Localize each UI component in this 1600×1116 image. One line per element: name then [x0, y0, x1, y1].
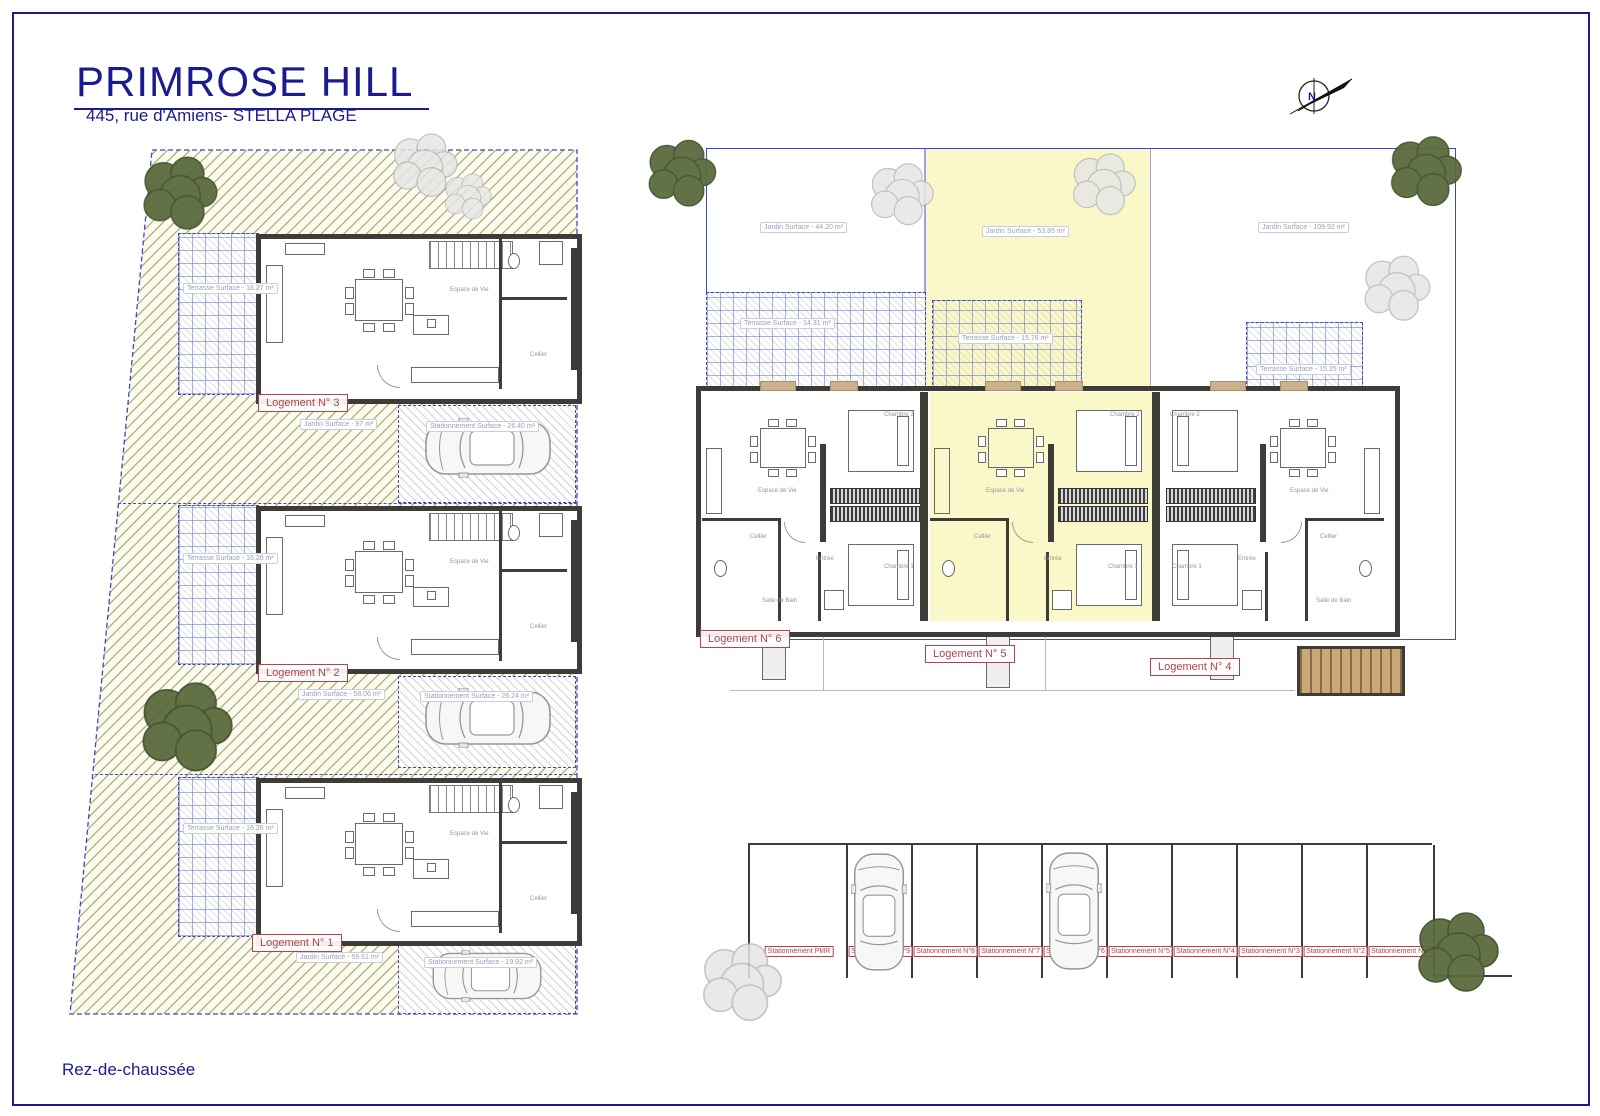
chair-icon	[383, 323, 395, 332]
furniture-unit-2	[261, 511, 567, 661]
pillow-icon	[1125, 416, 1137, 466]
terrace-unit-5	[932, 300, 1082, 390]
terrace-unit-2	[178, 505, 259, 665]
wardrobe-icon	[830, 506, 920, 522]
room-label-chambre1: Chambre 1	[1172, 564, 1202, 570]
chair-icon	[768, 419, 779, 427]
sink-icon	[427, 319, 436, 328]
door-sill	[830, 381, 858, 391]
interior-wall	[930, 518, 1008, 521]
parking-lot: Stationnement PMR Stationnement N°9 Stat…	[748, 843, 1432, 980]
terrace-surface-label: Terrasse Surface - 16.26 m²	[183, 553, 278, 564]
garden-surface-label: Jardin Surface - 44.20 m²	[760, 222, 847, 233]
chair-icon	[996, 469, 1007, 477]
terrace-surface-label: Terrasse Surface - 15.76 m²	[958, 333, 1053, 344]
building-annex	[571, 520, 579, 642]
pillow-icon	[1177, 550, 1189, 600]
console-icon	[285, 515, 325, 527]
path-line	[1045, 628, 1046, 690]
sofa-icon	[266, 809, 283, 887]
chair-icon	[405, 559, 414, 571]
shower-icon	[539, 513, 563, 537]
party-wall	[920, 392, 928, 621]
wardrobe-icon	[1058, 506, 1148, 522]
interior-wall	[1006, 518, 1009, 621]
building-annex	[571, 792, 579, 914]
chair-icon	[1014, 419, 1025, 427]
chair-icon	[1289, 469, 1300, 477]
room-label-cellier: Cellier	[1320, 534, 1337, 540]
stall-label: Stationnement N°6	[1043, 946, 1108, 957]
shower-icon	[539, 241, 563, 265]
interior-wall	[499, 569, 567, 572]
dining-table-icon	[355, 279, 403, 321]
wc-icon	[1359, 560, 1372, 577]
parking-stall-6: Stationnement N°6	[1041, 845, 1108, 978]
chair-icon	[405, 303, 414, 315]
dining-table-icon	[355, 823, 403, 865]
room-label-cellier: Cellier	[974, 534, 991, 540]
bed-icon	[848, 410, 914, 472]
parking-stall-3: Stationnement N°3	[1236, 845, 1303, 978]
bed-icon	[1076, 544, 1142, 606]
garden-surface-label: Jardin Surface - 53.85 m²	[982, 226, 1069, 237]
chair-icon	[405, 575, 414, 587]
parking-area-unit-3	[398, 405, 576, 503]
chair-icon	[750, 452, 758, 463]
path-line	[730, 690, 1295, 691]
chair-icon	[363, 323, 375, 332]
door-arc-icon	[1012, 522, 1033, 543]
terrace-surface-label: Terrasse Surface - 14.31 m²	[740, 318, 835, 329]
room-label-chambre2: Chambre 2	[1110, 412, 1140, 418]
garden-surface-label: Jardin Surface - 97 m²	[300, 419, 377, 430]
stall-label: Stationnement N°5	[1108, 946, 1173, 957]
dining-table-icon	[1280, 428, 1326, 468]
chair-icon	[405, 287, 414, 299]
furniture-unit-1	[261, 783, 567, 933]
bed-icon	[1076, 410, 1142, 472]
room-label-living: Espace de Vie	[450, 559, 489, 565]
garden-surface-label: Jardin Surface - 109.92 m²	[1258, 222, 1349, 233]
parking-surface-label: Stationnement Surface - 26.24 m²	[420, 691, 533, 702]
interior-wall	[1046, 552, 1049, 621]
terrace-unit-1	[178, 777, 259, 937]
path-line	[823, 628, 824, 690]
plan-sheet: PRIMROSE HILL 445, rue d'Amiens- STELLA …	[0, 0, 1600, 1116]
chair-icon	[345, 847, 354, 859]
sofa-icon	[266, 537, 283, 615]
parking-stall-4: Stationnement N°4	[1171, 845, 1238, 978]
pillow-icon	[897, 550, 909, 600]
chair-icon	[808, 452, 816, 463]
stall-label: Stationnement N°2	[1303, 946, 1368, 957]
furniture-unit-5	[930, 392, 1148, 621]
lot-division-line	[95, 774, 577, 775]
chair-icon	[383, 813, 395, 822]
room-label-entree: Entrée	[1238, 556, 1256, 562]
room-label-living: Espace de Vie	[450, 287, 489, 293]
chair-icon	[345, 575, 354, 587]
chair-icon	[1328, 436, 1336, 447]
door-arc-icon	[377, 909, 400, 932]
terrace-unit-3	[178, 233, 259, 395]
room-label-living: Espace de Vie	[758, 488, 797, 494]
chair-icon	[1307, 469, 1318, 477]
interior-wall	[499, 511, 502, 661]
door-sill	[985, 381, 1021, 391]
wc-icon	[508, 797, 520, 813]
interior-wall	[499, 783, 502, 933]
chair-icon	[1036, 452, 1044, 463]
chair-icon	[996, 419, 1007, 427]
shower-icon	[539, 785, 563, 809]
pillow-icon	[1125, 550, 1137, 600]
interior-wall	[1305, 518, 1308, 621]
interior-wall	[778, 518, 781, 621]
chair-icon	[786, 419, 797, 427]
room-label-sdb: Salle de Bain	[762, 598, 797, 604]
chair-icon	[345, 559, 354, 571]
sofa-icon	[1364, 448, 1380, 514]
parking-stall-8: Stationnement N°8	[911, 845, 978, 978]
door-sill	[1055, 381, 1083, 391]
project-title: PRIMROSE HILL	[74, 58, 429, 110]
parking-stall-pmr: Stationnement PMR	[748, 845, 848, 978]
room-label-chambre1: Chambre 1	[884, 564, 914, 570]
room-label-living: Espace de Vie	[1290, 488, 1329, 494]
sink-icon	[427, 591, 436, 600]
chair-icon	[1036, 436, 1044, 447]
media-wall	[1048, 444, 1054, 542]
stall-label: Stationnement N°7	[978, 946, 1043, 957]
chair-icon	[1270, 452, 1278, 463]
parking-stall-1: Stationnement N°1	[1366, 845, 1435, 978]
door-sill	[760, 381, 796, 391]
door-arc-icon	[1281, 522, 1302, 543]
bed-icon	[1172, 410, 1238, 472]
stall-label: Stationnement PMR	[765, 946, 834, 957]
sofa-icon	[934, 448, 950, 514]
media-wall	[820, 444, 826, 542]
kitchen-counter-icon	[411, 911, 499, 927]
stall-label: Stationnement N°9	[848, 946, 913, 957]
chair-icon	[978, 452, 986, 463]
wc-icon	[942, 560, 955, 577]
room-label-living: Espace de Vie	[450, 831, 489, 837]
chair-icon	[978, 436, 986, 447]
wardrobe-icon	[830, 488, 920, 504]
project-address: 445, rue d'Amiens- STELLA PLAGE	[86, 106, 357, 126]
parking-stall-5: Stationnement N°5	[1106, 845, 1173, 978]
unit-label: Logement N° 3	[258, 394, 348, 412]
unit-label: Logement N° 1	[252, 934, 342, 952]
unit-label: Logement N° 6	[700, 630, 790, 648]
furniture-unit-4	[1162, 392, 1384, 621]
pillow-icon	[897, 416, 909, 466]
door-sill	[1280, 381, 1308, 391]
wardrobe-icon	[1166, 488, 1256, 504]
console-icon	[285, 787, 325, 799]
terrace-surface-label: Terrasse Surface - 15.25 m²	[1256, 364, 1351, 375]
chair-icon	[808, 436, 816, 447]
room-label-cellier: Cellier	[530, 896, 547, 902]
wardrobe-icon	[1166, 506, 1256, 522]
room-label-chambre2: Chambre 2	[1170, 412, 1200, 418]
door-sill	[1210, 381, 1246, 391]
chair-icon	[1328, 452, 1336, 463]
chair-icon	[1307, 419, 1318, 427]
chair-icon	[363, 867, 375, 876]
chair-icon	[345, 303, 354, 315]
interior-wall	[499, 297, 567, 300]
parking-stall-9: Stationnement N°9	[846, 845, 913, 978]
wardrobe-icon	[1058, 488, 1148, 504]
furniture-unit-6	[702, 392, 920, 621]
kitchen-counter-icon	[411, 367, 499, 383]
door-arc-icon	[377, 637, 400, 660]
parking-area-unit-1	[398, 940, 576, 1014]
floor-label: Rez-de-chaussée	[62, 1060, 195, 1080]
interior-wall	[818, 552, 821, 621]
parking-area-unit-2	[398, 676, 576, 768]
deck-stairs	[1297, 646, 1405, 696]
unit-label: Logement N° 2	[258, 664, 348, 682]
room-label-chambre1: Chambre 1	[1108, 564, 1138, 570]
sink-icon	[427, 863, 436, 872]
console-icon	[285, 243, 325, 255]
room-label-sdb: Salle de Bain	[1316, 598, 1351, 604]
room-label-cellier: Cellier	[750, 534, 767, 540]
parking-stall-2: Stationnement N°2	[1301, 845, 1368, 978]
shower-icon	[1052, 590, 1072, 610]
chair-icon	[345, 287, 354, 299]
room-label-living: Espace de Vie	[986, 488, 1025, 494]
parking-stall-7: Stationnement N°7	[976, 845, 1043, 978]
room-label-entree: Entrée	[816, 556, 834, 562]
chair-icon	[786, 469, 797, 477]
stall-label: Stationnement N°1	[1368, 946, 1433, 957]
pillow-icon	[1177, 416, 1189, 466]
bed-icon	[1172, 544, 1238, 606]
dining-table-icon	[760, 428, 806, 468]
room-label-entree: Entrée	[1044, 556, 1062, 562]
sofa-icon	[266, 265, 283, 343]
lot-edge-line	[1432, 975, 1512, 977]
interior-wall	[499, 841, 567, 844]
chair-icon	[363, 541, 375, 550]
garden-surface-label: Jardin Surface - 58.06 m²	[298, 689, 385, 700]
interior-wall	[499, 239, 502, 389]
interior-wall	[702, 518, 780, 521]
sofa-icon	[706, 448, 722, 514]
parking-surface-label: Stationnement Surface - 19.92 m²	[424, 957, 537, 968]
interior-wall	[1265, 552, 1268, 621]
bed-icon	[848, 544, 914, 606]
lot-division-line	[118, 503, 577, 504]
building-annex	[571, 248, 579, 370]
chair-icon	[1289, 419, 1300, 427]
chair-icon	[768, 469, 779, 477]
stall-label: Stationnement N°3	[1238, 946, 1303, 957]
wc-icon	[508, 253, 520, 269]
party-wall	[1152, 392, 1160, 621]
chair-icon	[383, 867, 395, 876]
wc-icon	[508, 525, 520, 541]
kitchen-counter-icon	[411, 639, 499, 655]
chair-icon	[405, 847, 414, 859]
garden-surface-label: Jardin Surface - 59.61 m²	[296, 952, 383, 963]
room-label-chambre2: Chambre 2	[884, 412, 914, 418]
chair-icon	[383, 269, 395, 278]
unit-label: Logement N° 5	[925, 645, 1015, 663]
chair-icon	[363, 813, 375, 822]
parking-surface-label: Stationnement Surface - 26.40 m²	[426, 421, 539, 432]
wc-icon	[714, 560, 727, 577]
door-arc-icon	[784, 522, 805, 543]
interior-wall	[1306, 518, 1384, 521]
room-label-cellier: Cellier	[530, 352, 547, 358]
door-arc-icon	[377, 365, 400, 388]
furniture-unit-3	[261, 239, 567, 389]
media-wall	[1260, 444, 1266, 542]
chair-icon	[363, 595, 375, 604]
room-label-cellier: Cellier	[530, 624, 547, 630]
stall-label: Stationnement N°4	[1173, 946, 1238, 957]
chair-icon	[363, 269, 375, 278]
terrace-surface-label: Terrasse Surface - 16.26 m²	[183, 823, 278, 834]
chair-icon	[1270, 436, 1278, 447]
chair-icon	[750, 436, 758, 447]
terrace-surface-label: Terrasse Surface - 16.27 m²	[183, 283, 278, 294]
chair-icon	[405, 831, 414, 843]
unit-label: Logement N° 4	[1150, 658, 1240, 676]
stall-label: Stationnement N°8	[913, 946, 978, 957]
chair-icon	[383, 541, 395, 550]
dining-table-icon	[988, 428, 1034, 468]
terrace-unit-6	[706, 292, 926, 390]
chair-icon	[383, 595, 395, 604]
shower-icon	[824, 590, 844, 610]
chair-icon	[1014, 469, 1025, 477]
chair-icon	[345, 831, 354, 843]
shower-icon	[1242, 590, 1262, 610]
dining-table-icon	[355, 551, 403, 593]
